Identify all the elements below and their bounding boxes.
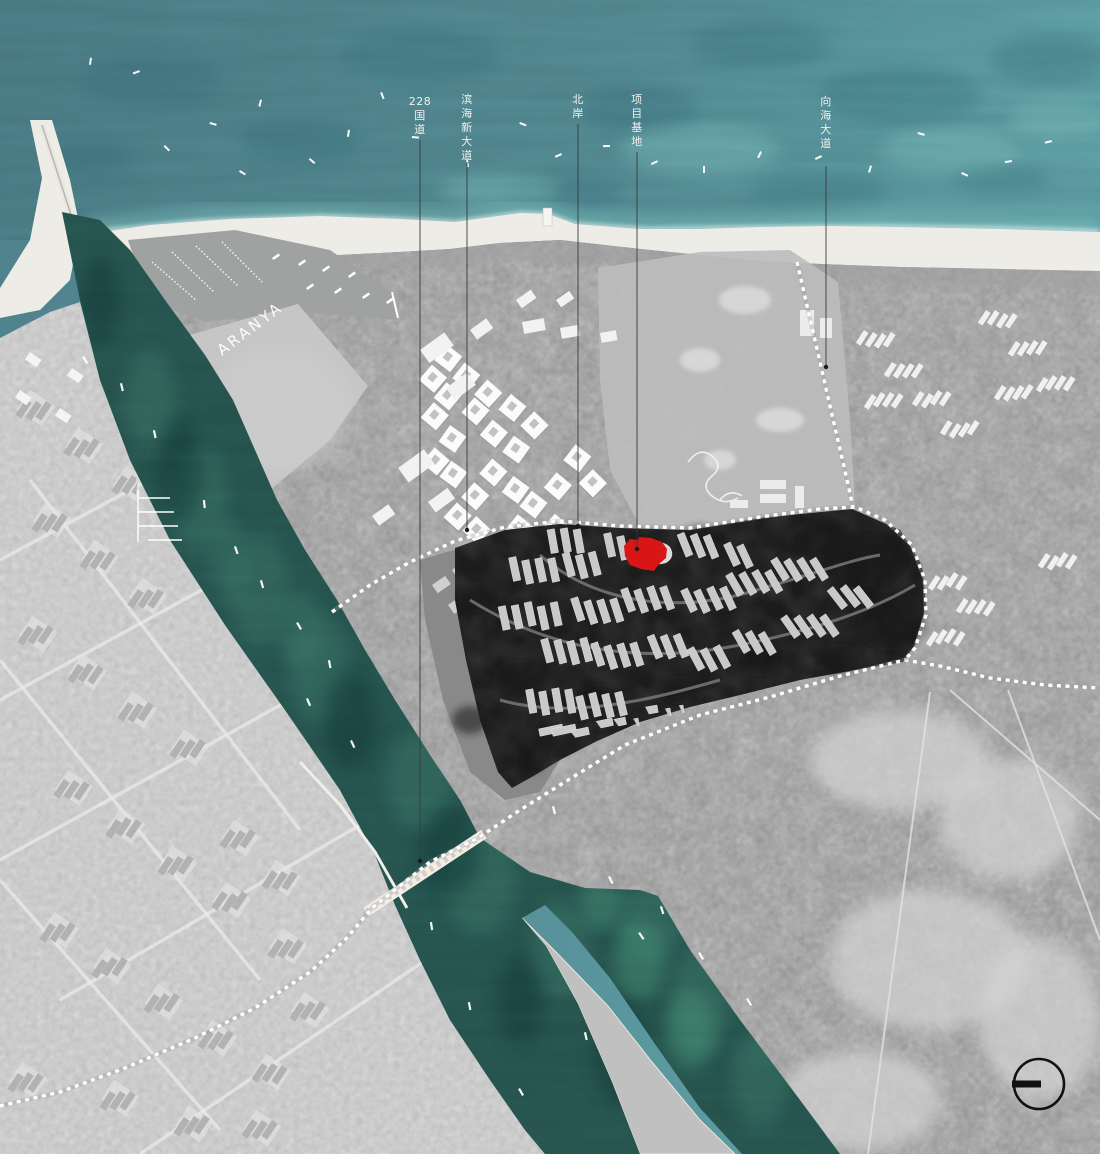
svg-text:大: 大 xyxy=(820,122,832,136)
svg-text:项: 项 xyxy=(631,93,643,106)
svg-text:北: 北 xyxy=(572,93,584,106)
svg-text:基: 基 xyxy=(631,121,643,134)
svg-text:新: 新 xyxy=(461,120,473,134)
svg-text:岸: 岸 xyxy=(572,107,584,120)
svg-text:地: 地 xyxy=(631,135,643,148)
svg-text:道: 道 xyxy=(461,148,473,162)
svg-text:向: 向 xyxy=(820,94,832,108)
svg-text:海: 海 xyxy=(461,106,473,120)
svg-text:海: 海 xyxy=(820,108,832,122)
svg-text:国: 国 xyxy=(414,109,426,122)
svg-text:目: 目 xyxy=(631,107,643,120)
svg-text:滨: 滨 xyxy=(461,92,473,106)
svg-text:道: 道 xyxy=(414,122,426,136)
site-plan-map: ARANYA228国道滨海新大道北岸项目基地向海大道 xyxy=(0,0,1100,1154)
svg-text:228: 228 xyxy=(409,95,432,108)
svg-text:道: 道 xyxy=(820,136,832,150)
svg-text:大: 大 xyxy=(461,134,473,148)
map-svg: ARANYA228国道滨海新大道北岸项目基地向海大道 xyxy=(0,0,1100,1154)
